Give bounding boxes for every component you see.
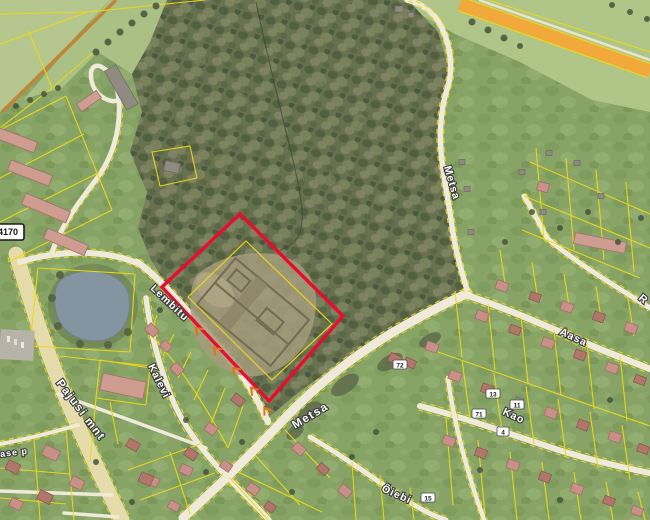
svg-text:4170: 4170: [0, 227, 18, 237]
house-number-badge: 71: [472, 409, 486, 419]
house-number-badge: 11: [510, 400, 524, 410]
map-svg[interactable]: Lembitu Kalevi Pajusi mnt Metsa Metsa Aa…: [0, 0, 650, 520]
road-number-sign: 4170: [0, 224, 24, 240]
svg-text:13: 13: [489, 392, 497, 399]
parking-lot: [0, 329, 35, 361]
house-number-badge: 15: [421, 493, 435, 503]
svg-text:72: 72: [396, 363, 404, 370]
house-number-badge: 72: [393, 360, 407, 370]
svg-text:11: 11: [514, 403, 521, 410]
house-number-badge: 4: [497, 427, 509, 437]
svg-text:4: 4: [501, 430, 505, 437]
svg-text:15: 15: [424, 496, 432, 503]
aerial-map-canvas[interactable]: Lembitu Kalevi Pajusi mnt Metsa Metsa Aa…: [0, 0, 650, 520]
house-number-badge: 13: [486, 389, 500, 399]
svg-text:71: 71: [475, 412, 483, 419]
